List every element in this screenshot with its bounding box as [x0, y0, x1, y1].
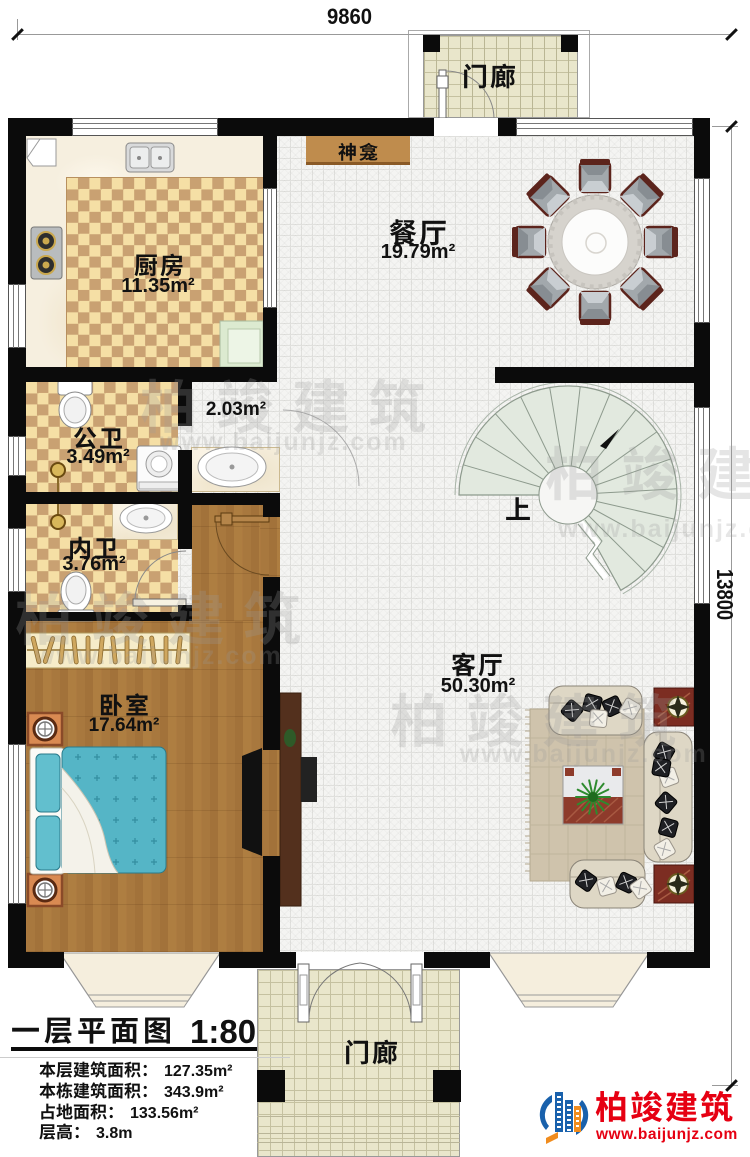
svg-text:www.baijunjz.com: www.baijunjz.com — [595, 1126, 738, 1143]
svg-text:1:80: 1:80 — [190, 1013, 256, 1050]
svg-text:127.35m²: 127.35m² — [164, 1063, 233, 1080]
svg-text:133.56m²: 133.56m² — [130, 1105, 199, 1122]
svg-text:343.9m²: 343.9m² — [164, 1084, 224, 1101]
svg-text:3.8m: 3.8m — [96, 1125, 132, 1142]
